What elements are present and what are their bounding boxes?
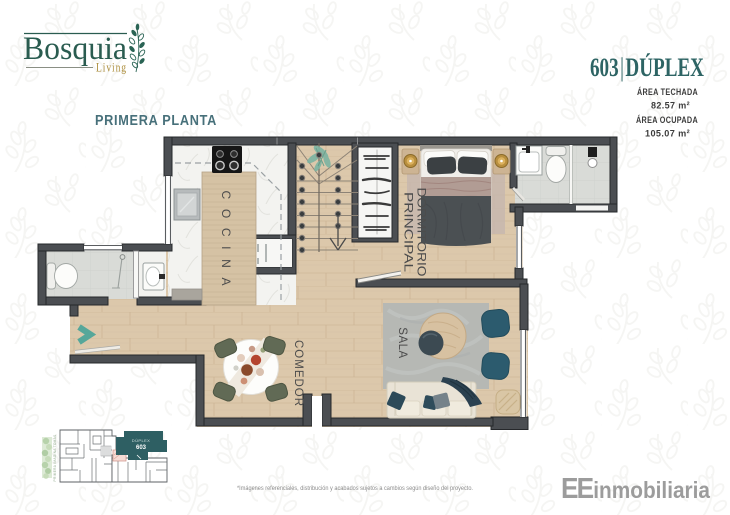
svg-text:*Imágenes referenciales, distr: *Imágenes referenciales, distribución y … xyxy=(237,486,473,492)
svg-text:603|DÚPLEX: 603|DÚPLEX xyxy=(590,53,704,82)
svg-text:SALA: SALA xyxy=(396,327,408,358)
svg-text:COMEDOR: COMEDOR xyxy=(292,340,304,406)
svg-text:ÁREA OCUPADA: ÁREA OCUPADA xyxy=(636,115,698,126)
svg-text:DORMITORIO: DORMITORIO xyxy=(415,188,427,277)
svg-text:105.07 m²: 105.07 m² xyxy=(645,129,690,140)
svg-text:Living: Living xyxy=(96,61,127,75)
svg-text:EEinmobiliaria: EEinmobiliaria xyxy=(561,473,710,505)
svg-text:ÁREA TECHADA: ÁREA TECHADA xyxy=(637,87,698,98)
svg-text:PRIMERA PLANTA: PRIMERA PLANTA xyxy=(95,113,217,129)
svg-text:PRINCIPAL: PRINCIPAL xyxy=(402,192,414,273)
svg-text:82.57 m²: 82.57 m² xyxy=(651,101,690,112)
svg-text:PRIMERA IMAGINA TOMAS: PRIMERA IMAGINA TOMAS xyxy=(53,435,57,482)
svg-text:DÚPLEX: DÚPLEX xyxy=(132,438,150,443)
svg-text:603: 603 xyxy=(136,445,147,451)
